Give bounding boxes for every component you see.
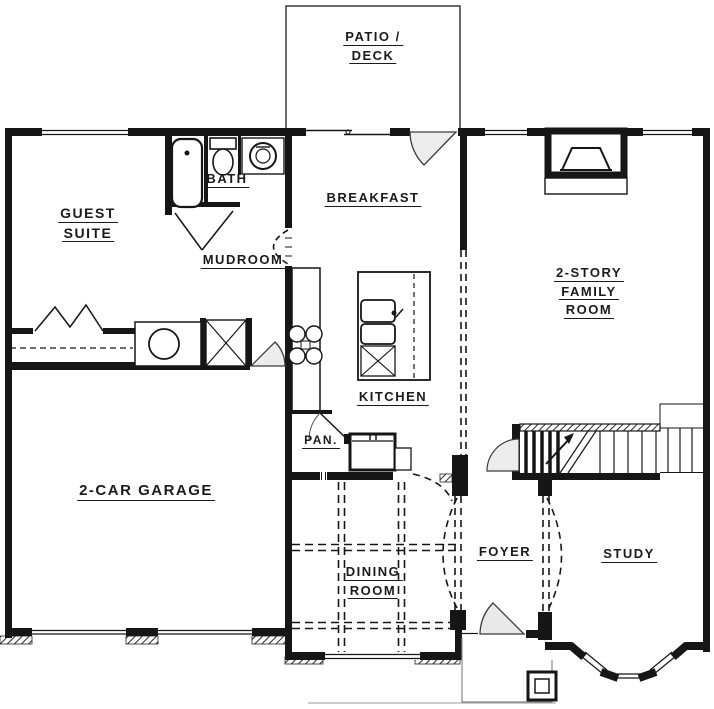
dishwasher-icon: [361, 346, 395, 376]
bathroom-sink-icon: [242, 138, 284, 174]
room-label-patio-deck: PATIO / DECK: [343, 30, 403, 67]
room-label-mudroom: MUDROOM: [201, 253, 286, 272]
utility-closet-x: [206, 320, 246, 366]
laundry-sink-icon: [135, 322, 201, 366]
room-label-pantry: PAN.: [302, 434, 340, 452]
fireplace: [545, 128, 627, 194]
porch-column: [528, 672, 556, 700]
cooktop-icon: [289, 326, 322, 364]
room-label-garage: 2-CAR GARAGE: [77, 483, 215, 504]
bathtub-icon: [172, 139, 202, 207]
room-label-foyer: FOYER: [477, 545, 533, 564]
room-label-guest-suite: GUEST SUITE: [58, 206, 118, 245]
refrigerator-icon: [350, 434, 411, 470]
room-label-dining-room: DINING ROOM: [344, 565, 403, 602]
staircase: [487, 404, 703, 473]
room-label-kitchen: KITCHEN: [357, 390, 429, 409]
porch: [308, 638, 556, 703]
toilet-icon: [210, 138, 236, 175]
room-label-bath: BATH: [204, 172, 249, 191]
room-label-study: STUDY: [601, 547, 657, 566]
guest-closet: [10, 305, 133, 348]
floor-plan-drawing: [0, 0, 714, 709]
bay-window: [545, 645, 710, 678]
room-label-breakfast: BREAKFAST: [325, 191, 422, 210]
floor-plan: PATIO / DECK GUEST SUITE BATH MUDROOM BR…: [0, 0, 714, 709]
room-label-family-room: 2-STORY FAMILY ROOM: [554, 266, 624, 322]
patio-outline: [286, 6, 460, 130]
